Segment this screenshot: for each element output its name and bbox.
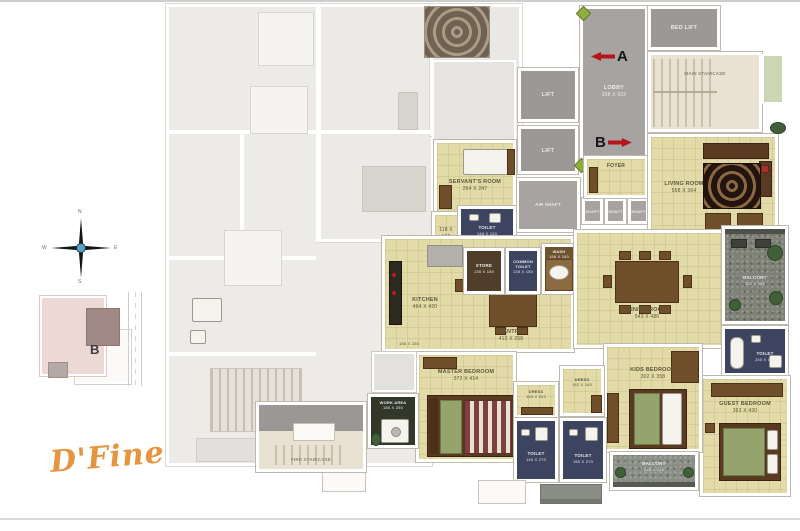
sofa xyxy=(703,143,769,159)
page-top-rule xyxy=(0,0,800,2)
master-bedroom-label: MASTER BEDROOM 372 X 414 xyxy=(419,369,513,383)
stair-landing-line xyxy=(653,91,717,93)
room-foyer: FOYER xyxy=(584,156,648,198)
compass-icon: N E S W xyxy=(36,205,126,285)
fire-staircase-label: FIRE STAIRCASE xyxy=(259,457,363,463)
plant xyxy=(769,291,783,305)
stove-burner xyxy=(392,291,396,295)
key-plan-road xyxy=(128,292,142,386)
stair-treads xyxy=(653,59,717,127)
dining-room-label: DINING ROOM 543 X 486 xyxy=(607,307,687,321)
living-balcony-label: BALCONY 200 X 665 xyxy=(725,275,785,286)
room-work-area: WORK AREA 186 X 250 xyxy=(368,394,418,448)
shaft-3-label: SHAFT xyxy=(631,209,646,214)
wardrobe xyxy=(591,395,602,413)
faded-wall xyxy=(166,352,316,356)
bed-lift-label: BED LIFT xyxy=(651,25,717,32)
faded-dining-table xyxy=(362,166,426,212)
room-main-staircase: MAIN STAIRCASE xyxy=(648,52,762,132)
wc-fixture xyxy=(535,427,548,441)
room-master-dress: DRESS 180 X 202 xyxy=(514,382,558,418)
planter-strip xyxy=(762,54,784,104)
pillow xyxy=(767,430,778,450)
bed-blanket xyxy=(440,400,462,454)
room-shaft-2: SHAFT xyxy=(605,198,626,224)
section-marker-a: A xyxy=(591,49,628,64)
kids-balcony-label: BALCONY 240 X 120 xyxy=(613,461,695,472)
room-kids-toilet: TOILET 150 X 270 xyxy=(560,418,606,482)
entry-porch xyxy=(478,480,526,504)
bed-mattress xyxy=(662,393,682,445)
room-fire-staircase: FIRE STAIRCASE xyxy=(256,402,366,472)
kids-toilet-label: TOILET 150 X 270 xyxy=(563,453,603,464)
shaft-1-label: SHAFT xyxy=(585,209,600,214)
section-marker-b: B xyxy=(595,135,632,150)
page-bottom-rule xyxy=(0,518,800,520)
pantry-label: PANTRY 410 X 258 xyxy=(477,329,545,343)
guest-bedroom-label: GUEST BEDROOM 363 X 430 xyxy=(703,401,787,415)
washing-machine xyxy=(381,419,409,443)
faded-counter xyxy=(398,92,418,130)
servants-room-label: SERVANT'S ROOM 264 X 247 xyxy=(437,179,513,193)
room-lift-2: LIFT xyxy=(518,126,578,174)
chair xyxy=(639,251,651,260)
faded-rug xyxy=(424,6,490,58)
room-guest-toilet: TOILET 240 X 150 xyxy=(722,326,788,376)
bed-headboard xyxy=(429,398,438,454)
master-toilet-label: TOILET 140 X 270 xyxy=(517,451,555,462)
service-ledge xyxy=(540,484,602,504)
console-table xyxy=(589,167,598,193)
key-plan: B xyxy=(34,288,150,388)
room-shaft-3: SHAFT xyxy=(628,198,649,224)
faded-porch xyxy=(322,472,366,492)
room-kids-dress: DRESS 182 X 160 xyxy=(560,366,604,416)
bench xyxy=(731,239,747,248)
chair xyxy=(619,251,631,260)
lift-1-label: LIFT xyxy=(521,92,575,99)
lift-2-label: LIFT xyxy=(521,148,575,155)
air-shaft-label: AIR SHAFT xyxy=(519,202,577,208)
left-arrow-icon xyxy=(591,52,615,61)
bed-mattress-striped xyxy=(464,400,512,454)
wardrobe xyxy=(423,357,457,369)
shaft-2-label: SHAFT xyxy=(608,209,623,214)
key-plan-annex xyxy=(48,362,68,378)
work-area-label: WORK AREA 186 X 250 xyxy=(371,400,415,410)
side-table xyxy=(705,423,715,433)
bed-blanket xyxy=(723,428,765,476)
room-air-shaft: AIR SHAFT xyxy=(516,178,580,232)
room-kids-balcony: BALCONY 240 X 120 xyxy=(610,452,698,490)
living-room-label: LIVING ROOM 558 X 364 xyxy=(653,181,715,195)
room-common-toilet: COMMON TOILET 135 X 150 xyxy=(506,248,540,294)
faded-bed xyxy=(250,86,308,134)
chair xyxy=(659,251,671,260)
compass-west-label: W xyxy=(42,245,47,251)
room-kids-bedroom: KIDS BEDROOM 302 X 358 xyxy=(604,344,702,452)
right-arrow-icon xyxy=(608,138,632,147)
faded-bed xyxy=(258,12,314,66)
faded-wall xyxy=(318,130,434,134)
kitchen-side-dims: 186 X 236 xyxy=(387,341,431,346)
compass-east-label: E xyxy=(114,245,117,251)
room-dining-room: DINING ROOM 543 X 486 xyxy=(574,230,724,348)
room-shaft-1: SHAFT xyxy=(582,198,603,224)
faded-bath-fixture xyxy=(190,330,206,344)
room-store: STORE 135 X 150 xyxy=(464,248,504,294)
refrigerator xyxy=(427,245,463,267)
wash-label: WASH 186 X 150 xyxy=(545,249,573,259)
faded-bath-fixture xyxy=(192,298,222,322)
kids-dress-label: DRESS 182 X 160 xyxy=(563,377,601,387)
floor-plan-page: A LOBBY 208 X 602 B BED LIFT MAIN STAIRC… xyxy=(0,0,800,531)
double-bed xyxy=(719,423,781,481)
room-guest-bedroom: GUEST BEDROOM 363 X 430 xyxy=(700,376,790,496)
common-toilet-label: COMMON TOILET 135 X 150 xyxy=(509,259,537,275)
room-living-balcony: BALCONY 200 X 665 xyxy=(722,226,788,324)
wc-fixture xyxy=(489,213,501,223)
lobby-label: LOBBY 208 X 602 xyxy=(583,85,645,99)
compass-south-label: S xyxy=(78,279,81,285)
wash-sink xyxy=(549,265,569,280)
wardrobe xyxy=(711,383,783,397)
double-bed xyxy=(427,395,515,457)
stair-well xyxy=(293,423,335,441)
room-bed-lift: BED LIFT xyxy=(648,6,720,50)
section-letter-b: B xyxy=(595,135,606,150)
kids-bedroom-label: KIDS BEDROOM 302 X 358 xyxy=(607,367,699,381)
balcony-railing xyxy=(725,229,785,234)
washer-door xyxy=(391,427,401,437)
double-bed xyxy=(629,389,687,449)
sink-fixture xyxy=(521,429,530,436)
brand-logo-text: D'Fine xyxy=(49,435,166,480)
room-servants-room: SERVANT'S ROOM 264 X 247 xyxy=(434,140,516,216)
bed-headboard xyxy=(507,149,515,175)
sink-fixture xyxy=(469,214,479,221)
wardrobe xyxy=(521,407,553,415)
wc-fixture xyxy=(585,427,598,441)
room-lift-1: LIFT xyxy=(518,68,578,122)
key-plan-highlight-wing xyxy=(86,308,120,346)
room-lobby: A LOBBY 208 X 602 B xyxy=(580,6,648,160)
sink-fixture xyxy=(751,335,761,343)
room-master-bedroom: MASTER BEDROOM 372 X 414 xyxy=(416,352,516,462)
section-letter-a: A xyxy=(617,49,628,64)
pillow xyxy=(767,454,778,474)
room-wash: WASH 186 X 150 xyxy=(542,244,576,294)
kitchen-label: KITCHEN 464 X 420 xyxy=(387,297,463,311)
room-living-room: LIVING ROOM 558 X 364 xyxy=(648,134,778,234)
key-plan-unit-letter: B xyxy=(90,342,99,357)
decor-item xyxy=(761,165,769,173)
compass-north-label: N xyxy=(78,209,82,215)
plant xyxy=(371,433,381,446)
service-court xyxy=(372,352,416,392)
foyer-label: FOYER xyxy=(587,163,645,170)
faded-bed xyxy=(224,230,282,286)
single-bed xyxy=(463,149,509,175)
compass-center-dot xyxy=(76,243,86,253)
store-label: STORE 135 X 150 xyxy=(467,263,501,274)
plant xyxy=(770,122,786,134)
plant xyxy=(767,245,783,261)
chair xyxy=(603,275,612,288)
master-dress-label: DRESS 180 X 202 xyxy=(517,389,555,399)
servant-toilet-label: TOILET 148 X 120 xyxy=(461,225,513,236)
sink-fixture xyxy=(569,429,578,436)
brand-logo: D'Fine xyxy=(49,435,166,480)
room-master-toilet: TOILET 140 X 270 xyxy=(514,418,558,482)
main-staircase-label: MAIN STAIRCASE xyxy=(655,71,755,77)
guest-toilet-label: TOILET 240 X 150 xyxy=(741,351,789,362)
faded-wall xyxy=(316,4,320,242)
balcony-railing xyxy=(613,482,695,487)
chair xyxy=(683,275,692,288)
pantry-table xyxy=(489,293,537,327)
bed-blanket xyxy=(634,393,660,445)
plant xyxy=(729,299,741,311)
stove-burner xyxy=(392,273,396,277)
wardrobe xyxy=(607,393,619,443)
dining-table xyxy=(615,261,679,303)
